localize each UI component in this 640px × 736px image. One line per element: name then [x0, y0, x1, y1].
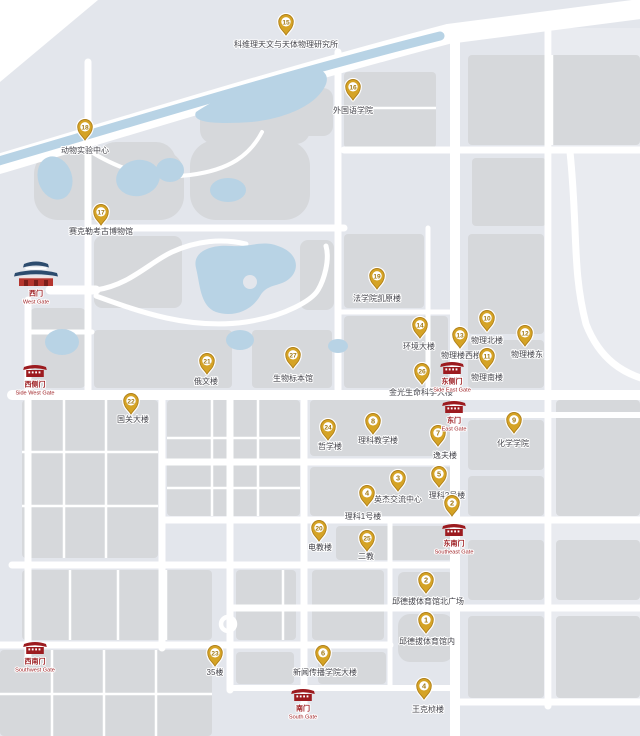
- map-marker-label-4-28: 王克桢楼: [412, 704, 444, 714]
- marker-number: 19: [373, 273, 381, 280]
- marker-number: 10: [483, 315, 491, 322]
- gate-label-zh: 西南门: [25, 657, 46, 666]
- marker-number: 12: [521, 330, 529, 337]
- marker-number: 24: [324, 424, 332, 431]
- map-marker-label-27-10: 生物标本馆: [273, 373, 313, 383]
- map-marker-label-2-24: 邱德拔体育馆北广场: [392, 596, 464, 606]
- map-marker-label-19-4: 法学院凯原楼: [353, 293, 401, 303]
- map-marker-label-4-20: 理科1号楼: [345, 511, 381, 521]
- map-marker-label-7-17: 逸夫楼: [433, 450, 457, 460]
- gate-label-en: Side West Gate: [15, 391, 54, 397]
- map-marker-label-10-5: 物理北楼: [471, 335, 503, 345]
- map-marker-label-16-1: 外国语学院: [333, 105, 373, 115]
- map-marker-label-21-11: 俄文楼: [194, 376, 218, 386]
- map-marker-label-20-22: 电教楼: [308, 542, 332, 552]
- map-marker-label-14-6: 环境大楼: [403, 341, 435, 351]
- marker-number: 22: [127, 398, 135, 405]
- gate-label-zh: 南门: [296, 704, 310, 713]
- marker-number: 5: [437, 469, 441, 478]
- marker-number: 2: [450, 498, 454, 507]
- marker-number: 8: [371, 416, 375, 425]
- marker-number: 1: [424, 615, 428, 624]
- gate-label-zh: 东侧门: [442, 377, 463, 386]
- gate-label-en: Southwest Gate: [15, 668, 55, 674]
- marker-number: 6: [321, 648, 325, 657]
- map-marker-label-15-0: 科维理天文与天体物理研究所: [234, 39, 338, 49]
- gate-label-zh: 西门: [29, 289, 43, 298]
- gate-label-zh: 西侧门: [25, 380, 46, 389]
- gate-label-en: West Gate: [23, 300, 49, 306]
- campus-map-canvas: 科维理天文与天体物理研究所外国语学院动物实验中心赛克勒考古博物馆法学院凯原楼物理…: [0, 0, 640, 736]
- gate-label-en: South Gate: [289, 715, 317, 721]
- marker-number: 16: [349, 84, 357, 91]
- marker-number: 27: [289, 352, 297, 359]
- marker-number: 25: [363, 535, 371, 542]
- pond: [156, 158, 184, 182]
- marker-number: 2: [424, 575, 428, 584]
- map-marker-label-22-13: 国关大楼: [117, 414, 149, 424]
- marker-number: 11: [484, 353, 491, 360]
- marker-number: 13: [456, 332, 464, 339]
- marker-number: 7: [436, 428, 440, 437]
- map-marker-label-1-25: 邱德拔体育馆内: [399, 636, 455, 646]
- map-marker-label-3-19: 英杰交流中心: [374, 494, 422, 504]
- map-marker-label-24-16: 哲学楼: [318, 441, 342, 451]
- marker-number: 9: [512, 415, 516, 424]
- gate-label-zh: 东南门: [444, 539, 465, 548]
- map-marker-label-17-3: 赛克勒考古博物馆: [69, 226, 133, 236]
- pond: [45, 329, 79, 355]
- marker-number: 21: [203, 358, 211, 365]
- marker-number: 26: [418, 368, 426, 375]
- gate-label-en: East Gate: [442, 427, 467, 433]
- marker-number: 20: [315, 525, 323, 532]
- marker-number: 15: [282, 19, 290, 26]
- map-marker-label-6-27: 新闻传播学院大楼: [293, 667, 357, 677]
- map-marker-label-18-2: 动物实验中心: [61, 145, 109, 155]
- pond: [226, 330, 254, 350]
- campus-map: 科维理天文与天体物理研究所外国语学院动物实验中心赛克勒考古博物馆法学院凯原楼物理…: [0, 0, 640, 736]
- map-marker-label-23-26: 35楼: [207, 667, 224, 677]
- map-marker-label-13-8: 物理楼西楼: [441, 350, 481, 360]
- marker-number: 17: [97, 209, 105, 216]
- gate-label-zh: 东门: [447, 416, 461, 425]
- map-marker-label-9-15: 化学学院: [497, 438, 529, 448]
- pond: [210, 178, 246, 202]
- marker-number: 18: [81, 124, 89, 131]
- gate-label-en: Side East Gate: [433, 388, 471, 394]
- marker-number: 3: [396, 473, 400, 482]
- marker-number: 14: [416, 322, 424, 329]
- map-marker-label-25-23: 二教: [358, 551, 374, 561]
- pond: [328, 339, 348, 353]
- map-marker-label-12-7: 物理楼东: [511, 349, 543, 359]
- marker-number: 23: [211, 650, 219, 657]
- gate-label-en: Southeast Gate: [435, 550, 474, 556]
- map-marker-label-8-14: 理科教学楼: [358, 435, 398, 445]
- map-marker-label-11-9: 物理南楼: [471, 372, 503, 382]
- lake-island: [243, 275, 257, 289]
